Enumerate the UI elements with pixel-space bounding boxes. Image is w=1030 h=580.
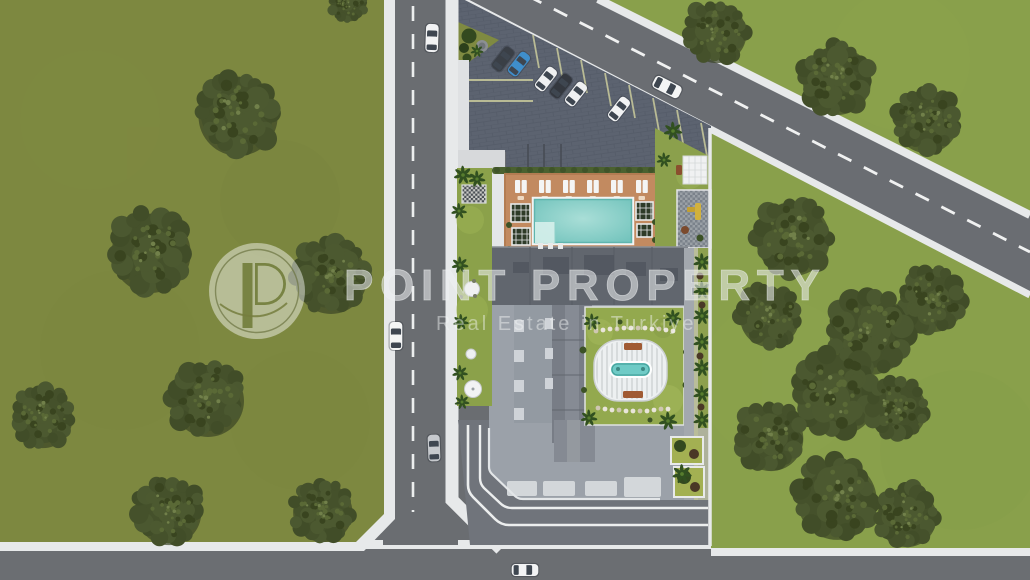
svg-text:POINT PROPERTY: POINT PROPERTY bbox=[344, 261, 827, 310]
svg-text:Real Estate in Turkiye: Real Estate in Turkiye bbox=[436, 313, 697, 335]
